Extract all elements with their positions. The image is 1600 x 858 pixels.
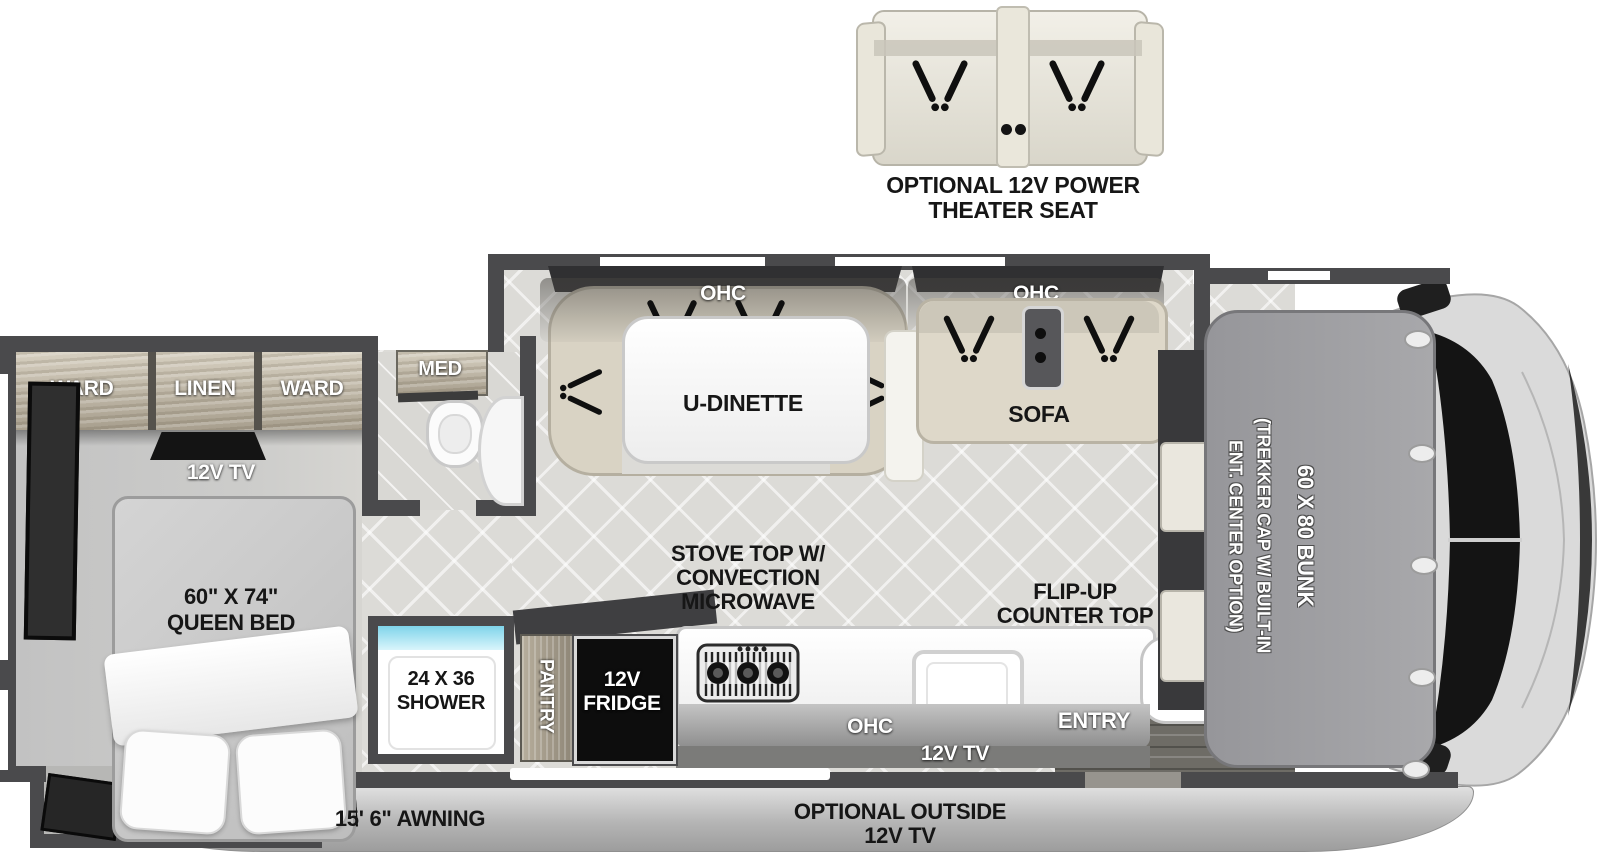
kitchen-tv-label: 12V TV [880, 742, 1030, 766]
fridge-label-2: FRIDGE [574, 692, 670, 716]
clearance-light [1404, 330, 1432, 349]
dinette-ohc-label: OHC [540, 282, 906, 306]
shower-name-label: SHOWER [376, 692, 506, 716]
theater-seat-label-1: OPTIONAL 12V POWER [868, 172, 1158, 198]
pantry-label: PANTRY [520, 634, 570, 758]
med-cabinet-label: MED [396, 358, 484, 382]
bedroom-tv-icon [150, 432, 266, 460]
sofa-cupholder [1035, 328, 1046, 339]
window-slot-dinette [600, 257, 765, 266]
stove-icon [696, 638, 800, 704]
flip-up-label-1: FLIP-UP [980, 580, 1170, 604]
sofa-label: SOFA [916, 400, 1162, 428]
outside-tv-label-2: 12V TV [780, 824, 1020, 848]
clearance-light [1408, 444, 1436, 463]
window-slot-right [1268, 271, 1330, 280]
bedroom-tv-label: 12V TV [156, 460, 286, 486]
awning-label: 15' 6" AWNING [290, 806, 530, 832]
cupholder-icon [1015, 124, 1026, 135]
dinette-label: U-DINETTE [622, 388, 864, 418]
stove-label-1: STOVE TOP W/ [636, 542, 860, 566]
wall-bath-stub-left [362, 500, 420, 516]
stove-label-2: CONVECTION [636, 566, 860, 590]
shower-glass [378, 626, 504, 650]
window-slot-sofa [835, 257, 1005, 266]
linen-label: LINEN [156, 376, 254, 402]
wall-main-bottom [308, 772, 1458, 788]
clearance-light [1408, 668, 1436, 687]
shower-size-label: 24 X 36 [376, 668, 506, 692]
wall-bath-left [362, 336, 378, 516]
stove-label-3: MICROWAVE [636, 590, 860, 614]
cupholder-icon [1001, 124, 1012, 135]
clearance-light [1402, 760, 1430, 779]
entry-door [1085, 772, 1181, 788]
seatbelt-icon [548, 364, 612, 420]
kitchen-ohc-label: OHC [700, 714, 1040, 740]
sofa-cupholder [1035, 352, 1046, 363]
cabinet-divider [148, 352, 156, 430]
wall-bedroom-top [0, 336, 376, 352]
bedroom-window-strip [0, 374, 8, 660]
entry-step-strip [510, 768, 830, 780]
outside-tv-label-1: OPTIONAL OUTSIDE [780, 800, 1020, 824]
bedroom-window-strip [0, 690, 8, 770]
bed-size-label: 60" X 74" [118, 584, 344, 610]
rv-floorplan: WARD LINEN WARD 12V TV 60" X 74" QUEEN B… [0, 0, 1600, 858]
clearance-light [1410, 556, 1438, 575]
bedroom-window-icon [24, 382, 80, 641]
cabinet-divider [254, 352, 262, 430]
toilet-bowl [438, 414, 472, 454]
bunk-option-label-1: (TREKKER CAP W/ BUILT-IN [1250, 330, 1276, 742]
seatbelt-icon [905, 58, 975, 116]
theater-seat-label-2: THEATER SEAT [868, 197, 1158, 223]
fridge-label-1: 12V [574, 668, 670, 692]
bed-name-label: QUEEN BED [118, 610, 344, 636]
sofa-console [1022, 306, 1064, 390]
bunk-size-label: 60 X 80 BUNK [1288, 330, 1322, 742]
seatbelt-icon [938, 312, 1000, 368]
bathroom-sink-icon [478, 396, 524, 506]
seatbelt-icon [1042, 58, 1112, 116]
bed-pillow [119, 728, 232, 835]
flip-up-label-2: COUNTER TOP [980, 604, 1170, 628]
ward-right-label: WARD [262, 376, 362, 402]
wall-slide-left [488, 254, 504, 352]
seatbelt-icon [1078, 312, 1140, 368]
bunk-option-label-2: ENT. CENTER OPTION) [1222, 330, 1248, 742]
entry-label: ENTRY [1038, 708, 1150, 734]
theater-seat-console [996, 6, 1030, 168]
